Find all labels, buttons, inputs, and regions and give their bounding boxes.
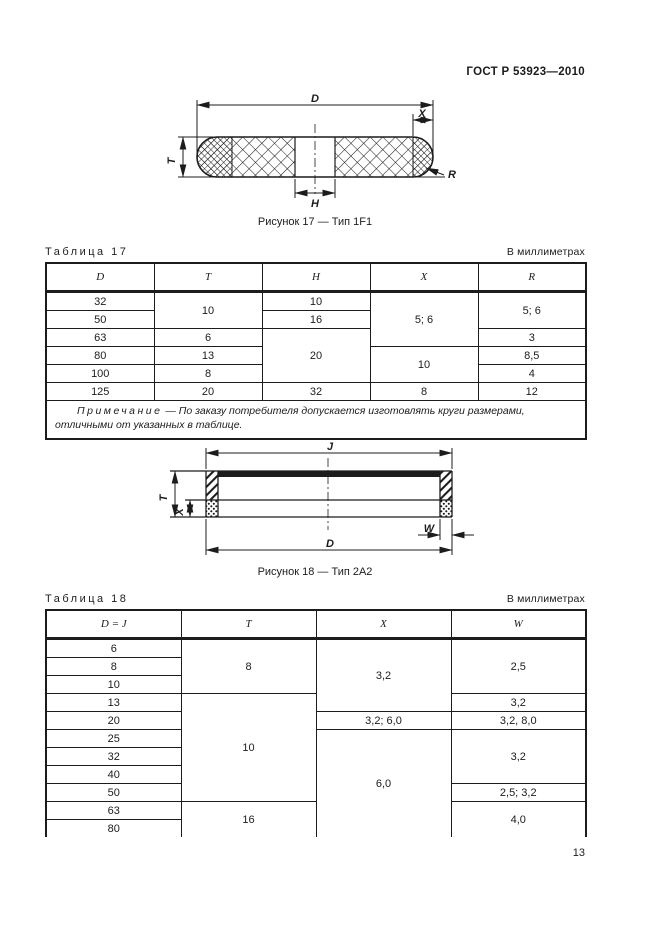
cell-x: 3,2	[316, 639, 451, 712]
cell-d: 50	[46, 784, 181, 802]
dim-label-X: X	[417, 108, 426, 120]
table-17-label: Таблица 17	[45, 246, 128, 258]
cell-t: 6	[154, 329, 262, 347]
cell-w: 2,5	[451, 639, 586, 694]
cell-r: 5; 6	[478, 292, 586, 329]
cell-r: 8,5	[478, 347, 586, 365]
dim-label-R: R	[448, 169, 456, 181]
dim-label-W: W	[424, 523, 436, 535]
cell-d: 10	[46, 676, 181, 694]
cell-d: 32	[46, 748, 181, 766]
cell-h: 10	[262, 292, 370, 311]
table-row: 6 8 3,2 2,5	[46, 639, 586, 658]
cell-t: 13	[154, 347, 262, 365]
cell-r: 4	[478, 365, 586, 383]
col-header-X: X	[316, 610, 451, 639]
cell-d: 32	[46, 292, 154, 311]
dim-label-J: J	[327, 441, 334, 453]
top-face-band	[218, 471, 440, 477]
cell-t: 8	[181, 639, 316, 694]
cell-x: 8	[370, 383, 478, 401]
dim-label-T: T	[158, 493, 170, 501]
wheel-body-section	[178, 124, 445, 194]
cell-d: 80	[46, 347, 154, 365]
figure-17-caption: Рисунок 17 — Тип 1F1	[45, 216, 585, 228]
note-label: Примечание	[77, 405, 162, 417]
cell-d: 63	[46, 802, 181, 820]
table-18: D = J T X W 6 8 3,2 2,5 8 10 13 10 3,2 2…	[45, 609, 587, 837]
abrasive-layer-left	[206, 500, 218, 517]
table-18-label: Таблица 18	[45, 593, 128, 605]
col-header-D: D	[46, 263, 154, 292]
radius-leader	[426, 168, 444, 175]
wheel-ring-section	[170, 458, 452, 530]
cell-x: 6,0	[316, 730, 451, 838]
col-header-X: X	[370, 263, 478, 292]
cell-d: 6	[46, 639, 181, 658]
cell-w: 2,5; 3,2	[451, 784, 586, 802]
cell-t: 10	[181, 694, 316, 802]
dim-label-D: D	[311, 93, 319, 105]
dim-label-D: D	[326, 538, 334, 550]
dim-label-H: H	[311, 198, 320, 210]
figure-18-caption: Рисунок 18 — Тип 2А2	[45, 566, 585, 578]
table-17-note-row: Примечание — По заказу потребителя допус…	[46, 401, 586, 439]
cell-x: 10	[370, 347, 478, 383]
cell-d: 63	[46, 329, 154, 347]
cell-r: 12	[478, 383, 586, 401]
cell-x: 3,2; 6,0	[316, 712, 451, 730]
col-header-W: W	[451, 610, 586, 639]
table-18-header-row: D = J T X W	[46, 610, 586, 639]
page-number: 13	[45, 847, 585, 859]
cell-t: 20	[154, 383, 262, 401]
cell-d: 125	[46, 383, 154, 401]
table-17-header-line: Таблица 17 В миллиметрах	[45, 246, 585, 258]
cell-w: 3,2, 8,0	[451, 712, 586, 730]
table-17-header-row: D T H X R	[46, 263, 586, 292]
table-row: 125 20 32 8 12	[46, 383, 586, 401]
table-18-header-line: Таблица 18 В миллиметрах	[45, 593, 585, 605]
table-17-units: В миллиметрах	[507, 246, 585, 258]
cell-t: 8	[154, 365, 262, 383]
cell-d: 25	[46, 730, 181, 748]
cell-w: 4,0	[451, 802, 586, 838]
cell-x: 5; 6	[370, 292, 478, 347]
table-row: 63 6 20 3	[46, 329, 586, 347]
abrasive-layer-right	[440, 500, 452, 517]
cell-d: 8	[46, 658, 181, 676]
col-header-H: H	[262, 263, 370, 292]
table-row: 32 10 10 5; 6 5; 6	[46, 292, 586, 311]
cell-d: 50	[46, 311, 154, 329]
col-header-R: R	[478, 263, 586, 292]
figure-17-drawing: D X T H R	[160, 92, 470, 212]
cell-w: 3,2	[451, 694, 586, 712]
body-hatch-right	[440, 471, 452, 500]
body-hatch-left	[206, 471, 218, 500]
dim-label-X: X	[174, 508, 186, 517]
col-header-T: T	[154, 263, 262, 292]
col-header-T: T	[181, 610, 316, 639]
cell-d: 13	[46, 694, 181, 712]
cell-d: 80	[46, 820, 181, 838]
cell-d: 20	[46, 712, 181, 730]
cell-r: 3	[478, 329, 586, 347]
table-row: 20 3,2; 6,0 3,2, 8,0	[46, 712, 586, 730]
cell-h: 16	[262, 311, 370, 329]
cell-h: 32	[262, 383, 370, 401]
cell-t: 10	[154, 292, 262, 329]
col-header-DJ: D = J	[46, 610, 181, 639]
cell-h: 20	[262, 329, 370, 383]
table-17: D T H X R 32 10 10 5; 6 5; 6 50 16 63 6 …	[45, 262, 587, 440]
table-18-units: В миллиметрах	[507, 593, 585, 605]
cell-d: 100	[46, 365, 154, 383]
document-number: ГОСТ Р 53923—2010	[45, 66, 585, 78]
table-note: Примечание — По заказу потребителя допус…	[46, 401, 586, 439]
figure-18-drawing: J T X W D	[150, 440, 480, 564]
table-row: 25 6,0 3,2	[46, 730, 586, 748]
cell-t: 16	[181, 802, 316, 838]
cell-d: 40	[46, 766, 181, 784]
cell-w: 3,2	[451, 730, 586, 784]
dim-label-T: T	[166, 156, 178, 164]
gost-document-page: { "header": { "doc_number": "ГОСТ Р 5392…	[0, 0, 661, 936]
